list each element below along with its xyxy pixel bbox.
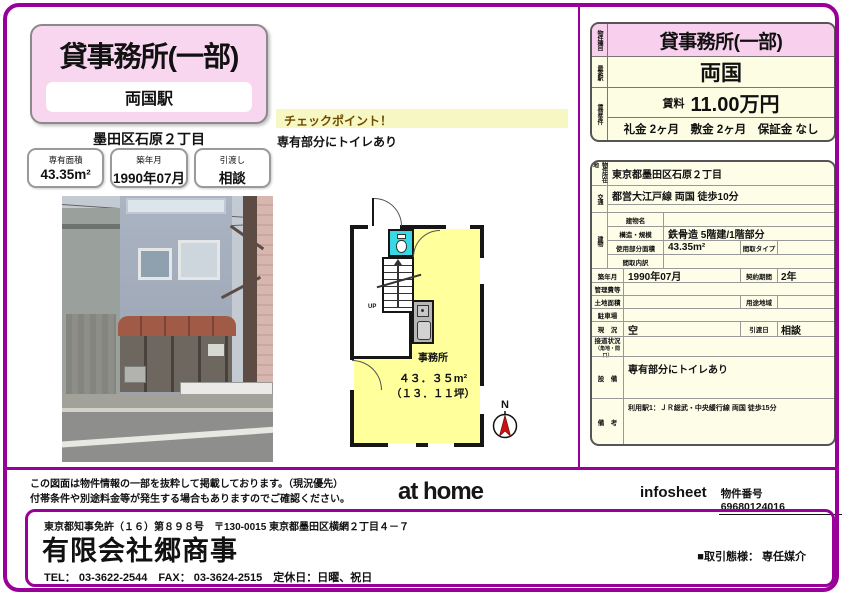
photo-sign bbox=[208, 344, 224, 356]
row-equipment: 設 備 専有部分にトイレあり bbox=[592, 356, 834, 398]
row-building-name: 建物名 bbox=[608, 213, 834, 226]
photo-left-roof bbox=[62, 224, 122, 229]
summary-terms: 礼金 2ヶ月 敷金 2ヶ月 保証金 なし bbox=[608, 118, 834, 140]
row-access-empty bbox=[608, 204, 834, 212]
room-area: ４３．３５m² bbox=[378, 370, 488, 386]
checkpoint-body: 専有部分にトイレあり bbox=[277, 133, 397, 150]
property-address: 墨田区石原２丁目 bbox=[30, 129, 268, 149]
horizontal-divider bbox=[7, 467, 835, 470]
row-location: 物件所在地 東京都墨田区石原２丁目 bbox=[592, 162, 834, 185]
row-access: 交通 都営大江戸線 両国 徒歩10分 bbox=[592, 185, 834, 212]
summary-station: 両国 bbox=[608, 57, 834, 88]
sink-faucet bbox=[421, 309, 424, 312]
row-access-value: 都営大江戸線 両国 徒歩10分 bbox=[608, 186, 834, 204]
building-photo bbox=[62, 196, 273, 462]
room-name: 事務所 bbox=[378, 349, 488, 364]
row-access-label: 交通 bbox=[592, 186, 608, 212]
property-title-box: 貸事務所(一部) 両国駅 bbox=[30, 24, 268, 124]
infosheet-label: infosheet bbox=[640, 484, 707, 501]
entry-door-arc bbox=[374, 198, 402, 226]
property-type-title: 貸事務所(一部) bbox=[32, 35, 266, 75]
sink-basin bbox=[417, 321, 431, 340]
room-labels: 事務所 ４３．３５m² （１３．１１坪） bbox=[378, 349, 488, 401]
row-layout: 間取内訳 bbox=[608, 254, 834, 268]
company-box: 東京都知事免許（１６）第８９８号 〒130-0015 東京都墨田区横網２丁目４－… bbox=[25, 509, 835, 587]
transaction-type: ■取引態様： 専任媒介 bbox=[697, 548, 806, 564]
stat-handover-label: 引渡し bbox=[196, 154, 269, 166]
station-pill: 両国駅 bbox=[46, 82, 252, 112]
row-remarks: 備 考 利用駅1：ＪＲ総武・中央緩行線 両国 徒歩15分 bbox=[592, 398, 834, 444]
row-road: 接道状況 （角地・間口） bbox=[592, 336, 834, 356]
photo-tree-trunk bbox=[243, 196, 257, 400]
building-group: 建物 建物名 構造・規模 鉄骨造 5階建/1階部分 使用部分面積 43.35m²… bbox=[592, 212, 834, 268]
row-location-label: 物件所在地 bbox=[592, 162, 608, 185]
disclaimer: この図面は物件情報の一部を抜粋して掲載しております。（現況優先） 付帯条件や別途… bbox=[30, 477, 350, 507]
toilet-tank bbox=[397, 234, 406, 239]
wall-window bbox=[428, 443, 454, 447]
stair-up-label: UP bbox=[368, 304, 376, 310]
summary-rent: 賃料 11.00万円 bbox=[608, 88, 834, 118]
wall-window bbox=[480, 258, 484, 284]
row-parking: 駐車場 bbox=[592, 308, 834, 321]
stat-boxes: 専有面積 43.35m² 築年月 1990年07月 引渡し 相談 bbox=[27, 148, 271, 188]
stat-area-label: 専有面積 bbox=[29, 154, 102, 166]
photo-garage-door bbox=[66, 314, 116, 406]
wall-window bbox=[446, 225, 470, 229]
building-group-label: 建物 bbox=[592, 213, 608, 268]
athome-logo: at home bbox=[398, 478, 483, 506]
infosheet-page: 貸事務所(一部) 両国駅 墨田区石原２丁目 専有面積 43.35m² 築年月 1… bbox=[0, 0, 842, 595]
vertical-divider bbox=[578, 7, 580, 467]
north-compass: N bbox=[489, 399, 521, 439]
property-number-label: 物件番号 bbox=[721, 488, 763, 500]
photo-window bbox=[178, 240, 220, 280]
stat-handover-value: 相談 bbox=[196, 167, 269, 187]
toilet-bowl bbox=[396, 240, 407, 253]
room-tsubo: （１３．１１坪） bbox=[378, 386, 488, 401]
rent-label: 賃料 bbox=[663, 95, 685, 111]
disclaimer-line1: この図面は物件情報の一部を抜粋して掲載しております。（現況優先） bbox=[30, 477, 350, 492]
stair-up-arrowhead bbox=[394, 259, 402, 265]
compass-icon bbox=[491, 411, 519, 439]
stat-area-value: 43.35m² bbox=[29, 167, 102, 182]
floorplan-kitchen-sink bbox=[412, 300, 434, 344]
stat-built-label: 築年月 bbox=[112, 154, 185, 166]
checkpoint-bar: チェックポイント！ bbox=[276, 109, 568, 128]
stat-built: 築年月 1990年07月 bbox=[110, 148, 187, 188]
details-table: 物件所在地 東京都墨田区石原２丁目 交通 都営大江戸線 両国 徒歩10分 建物 … bbox=[590, 160, 836, 446]
row-status: 現 況 空 引渡日 相談 bbox=[592, 321, 834, 336]
stat-built-value: 1990年07月 bbox=[112, 167, 185, 187]
summary-side-label-terms: 賃貸条件 bbox=[592, 88, 608, 140]
wall-window bbox=[388, 443, 416, 447]
stair-up-arrow bbox=[397, 264, 399, 308]
stat-handover: 引渡し 相談 bbox=[194, 148, 271, 188]
photo-awning bbox=[118, 316, 236, 336]
summary-side-label-station: 最寄駅 bbox=[592, 57, 608, 88]
rent-value: 11.00万円 bbox=[691, 88, 780, 117]
disclaimer-line2: 付帯条件や別途料金等が発生する場合もありますのでご確認ください。 bbox=[30, 492, 350, 507]
photo-top-window-band bbox=[126, 198, 226, 214]
photo-ac-unit bbox=[124, 366, 146, 383]
row-management: 管理費等 bbox=[592, 282, 834, 295]
wall-window bbox=[480, 386, 484, 414]
company-contact: TEL： 03-3622-2544 FAX： 03-3624-2515 定休日：… bbox=[44, 569, 372, 585]
summary-side-label-type: 物件種目 bbox=[592, 24, 608, 57]
checkpoint-title: チェックポイント！ bbox=[276, 109, 568, 129]
summary-type: 貸事務所(一部) bbox=[608, 24, 834, 57]
summary-box: 物件種目 貸事務所(一部) 最寄駅 両国 賃貸条件 賃料 11.00万円 礼金 … bbox=[590, 22, 836, 142]
floorplan-toilet bbox=[388, 229, 414, 257]
row-structure: 構造・規模 鉄骨造 5階建/1階部分 bbox=[608, 226, 834, 240]
company-name: 有限会社郷商事 bbox=[42, 529, 238, 568]
photo-window bbox=[138, 248, 172, 280]
row-land: 土地面積 用途地域 bbox=[592, 295, 834, 308]
north-label: N bbox=[489, 399, 521, 411]
row-built: 築年月 1990年07月 契約期間 2年 bbox=[592, 268, 834, 282]
row-location-value: 東京都墨田区石原２丁目 bbox=[608, 162, 834, 185]
row-use-area: 使用部分面積 43.35m² 間取タイプ bbox=[608, 240, 834, 254]
stat-area: 専有面積 43.35m² bbox=[27, 148, 104, 188]
